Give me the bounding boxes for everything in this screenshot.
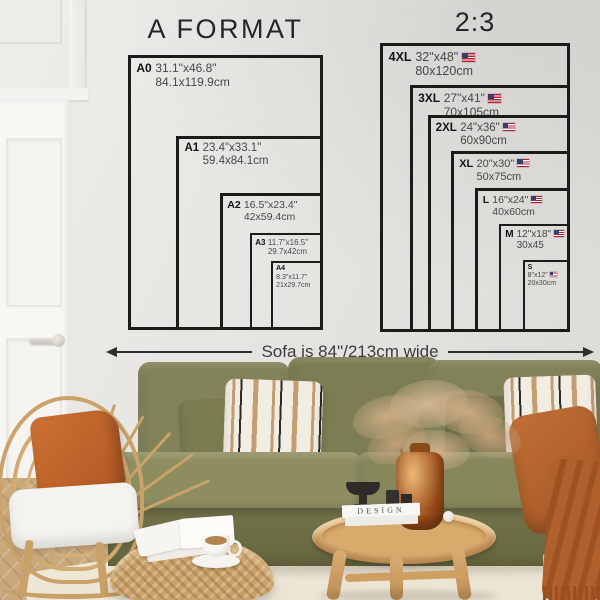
book-spine-text: DESIGN	[357, 505, 405, 516]
size-label-a0: A031.1"x46.8"84.1x119.9cm	[131, 58, 232, 89]
size-code: A3	[255, 238, 265, 256]
size-inches: 8.3"x11.7"	[276, 274, 310, 282]
left-arrow-icon	[108, 351, 252, 353]
size-cm: 30x45	[517, 240, 565, 252]
size-box-a4: A48.3"x11.7"21x29.7cm	[271, 261, 323, 330]
size-cm: 42x59.4cm	[244, 211, 298, 223]
sofa-width-text: Sofa is 84"/213cm wide	[261, 342, 438, 362]
table-shadow	[318, 590, 498, 600]
us-flag-icon	[462, 53, 475, 62]
ratio-title: 2:3	[380, 7, 570, 38]
size-code: XL	[459, 158, 473, 183]
size-label-4xl: 4XL32"x48"80x120cm	[383, 46, 477, 79]
size-code: 4XL	[389, 50, 412, 79]
size-code: A1	[184, 142, 199, 168]
size-code: 2XL	[436, 122, 457, 148]
size-inches: 32"x48"	[415, 50, 475, 64]
size-cm: 50x75cm	[477, 171, 529, 184]
us-flag-icon	[554, 230, 565, 237]
wall-molding	[0, 0, 62, 44]
size-label-xl: XL20"x30"50x75cm	[454, 154, 531, 183]
right-arrow-icon	[448, 351, 592, 353]
size-code: A4	[276, 265, 310, 273]
size-code: L	[483, 194, 489, 218]
throw-blanket-fringe	[543, 586, 600, 600]
us-flag-icon	[503, 123, 515, 131]
size-inches: 16.5"x23.4"	[244, 199, 298, 211]
size-inches: 31.1"x46.8"	[155, 62, 230, 76]
size-cm: 21x29.7cm	[276, 282, 310, 290]
size-code: A2	[227, 199, 240, 223]
size-label-l: L16"x24"40x60cm	[478, 191, 544, 218]
size-cm: 29.7x42cm	[268, 247, 308, 256]
size-inches: 12"x18"	[517, 229, 565, 241]
size-code: S	[528, 264, 557, 272]
size-label-a3: A311.7"x16.5"29.7x42cm	[252, 235, 310, 256]
throw-blanket-drape	[541, 458, 600, 600]
door-lintel	[0, 88, 88, 100]
size-label-a4: A48.3"x11.7"21x29.7cm	[273, 263, 312, 289]
us-flag-icon	[531, 196, 542, 204]
size-inches: 20"x30"	[477, 158, 529, 171]
wall-trim	[70, 0, 87, 100]
size-label-2xl: 2XL24"x36"60x90cm	[431, 118, 518, 148]
size-cm: 80x120cm	[415, 64, 475, 78]
size-cm: 40x60cm	[492, 206, 542, 218]
size-guide-image: DESIGN A FORMAT 2:3 A031.1"x46.8"84.1x11…	[0, 0, 600, 600]
size-box-s: S8"x12"20x30cm	[523, 260, 571, 332]
size-label-m: M12"x18"30x45	[501, 226, 567, 252]
size-cm: 59.4x84.1cm	[203, 155, 269, 168]
us-flag-icon	[488, 94, 501, 103]
door-panel	[6, 138, 62, 307]
a-format-size-chart: A031.1"x46.8"84.1x119.9cmA123.4"x33.1"59…	[128, 55, 323, 330]
sofa-width-annotation: Sofa is 84"/213cm wide	[108, 341, 592, 363]
size-inches: 27"x41"	[444, 92, 501, 106]
size-cm: 60x90cm	[460, 135, 515, 148]
size-cm: 84.1x119.9cm	[155, 76, 230, 90]
size-code: A0	[136, 62, 151, 90]
size-label-s: S8"x12"20x30cm	[525, 262, 559, 288]
size-inches: 16"x24"	[492, 194, 542, 206]
size-inches: 11.7"x16.5"	[268, 238, 308, 247]
size-cm: 20x30cm	[528, 280, 557, 288]
size-code: M	[505, 229, 513, 252]
door-handle-rose	[52, 334, 65, 347]
size-inches: 24"x36"	[460, 122, 515, 135]
ratio-2-3-size-chart: 4XL32"x48"80x120cm3XL27"x41"70x105cm2XL2…	[380, 43, 570, 332]
size-label-a1: A123.4"x33.1"59.4x84.1cm	[179, 139, 270, 169]
size-inches: 8"x12"	[528, 272, 557, 280]
coffee-surface	[205, 536, 227, 545]
us-flag-icon	[517, 159, 529, 167]
us-flag-icon	[550, 272, 557, 277]
a-format-title: A FORMAT	[128, 14, 323, 45]
decor-ball	[443, 511, 454, 522]
size-inches: 23.4"x33.1"	[203, 142, 269, 155]
size-label-a2: A216.5"x23.4"42x59.4cm	[223, 196, 300, 223]
